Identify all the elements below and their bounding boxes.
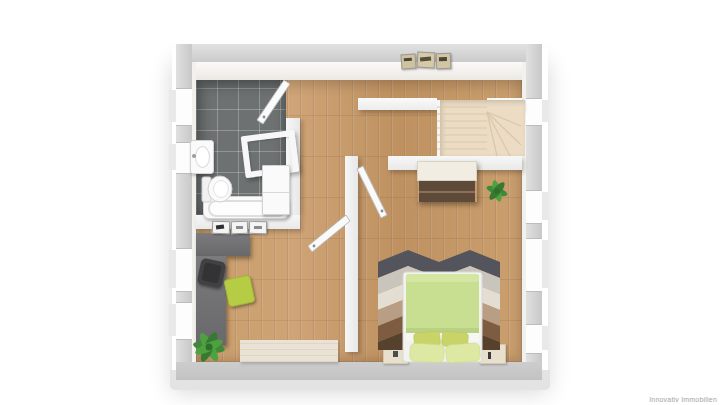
bedroom-plant [485,179,508,202]
detail-overlay [0,0,720,405]
stair-treads [437,107,521,156]
watermark: Innovativ Immobilien [649,396,717,403]
floorplan-canvas: Innovativ Immobilien [0,0,720,405]
bedroom-door-leaf [357,166,387,218]
toilet [202,176,232,202]
double-bed [403,272,482,363]
office-plant [192,330,225,363]
office-door-leaf [308,215,350,252]
bathroom-door-leaf [257,80,290,124]
